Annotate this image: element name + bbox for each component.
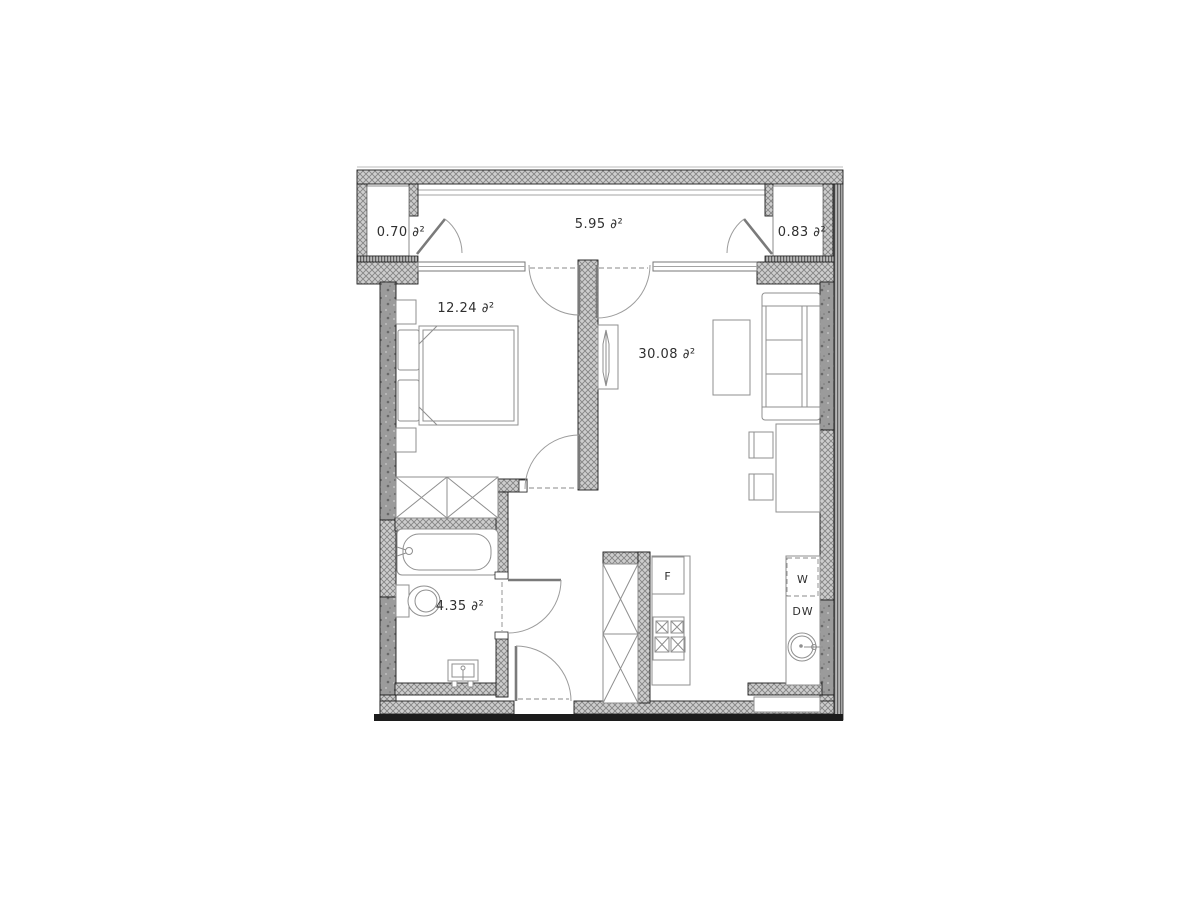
chair [749,432,773,458]
tv-unit [598,325,618,389]
right-wall [820,430,834,600]
right-closet-area-label: 0.83 ∂² [778,225,827,240]
right-closet-wall [823,184,833,264]
right-wall-concrete [820,282,834,430]
door-jamb [495,572,508,579]
left-closet-area-label: 0.70 ∂² [377,225,426,240]
bedroom-door [519,435,579,492]
bedroom-living-wall [578,260,598,490]
bedroom-balcony-door [529,265,579,315]
chair-seat [749,474,773,500]
floor-plan: 0.70 ∂² 5.95 ∂² 0.83 ∂² 12.24 ∂² 30.08 ∂… [0,0,1200,900]
washing-machine-label: W [797,573,809,586]
right-closet-door [727,219,772,254]
fridge-label: F [664,570,671,583]
dishwasher-label: DW [792,605,813,618]
bathroom-door [495,572,561,639]
right-wall-insulation-strip [834,184,843,720]
sofa [762,293,820,420]
top-wall-left-pier [357,262,418,284]
toilet [396,585,440,617]
bottom-wall-outer-line [374,714,843,721]
bedroom-wardrobe [396,477,498,518]
door-jamb [495,632,508,639]
nightstand [396,300,416,324]
hall-kitchen-wall [638,552,650,703]
top-wall-right-pier [757,262,834,284]
bottom-wall [380,701,514,714]
left-wall-concrete [380,282,396,520]
right-closet-wall-stub [765,184,773,216]
washbasin-leg [468,681,473,687]
bed-mattress [419,326,518,425]
chair [749,474,773,500]
left-closet-interior [367,186,409,256]
pillow [398,380,419,421]
bathroom-bottom-wall [395,683,507,695]
shaft-cabinet [603,564,638,703]
balcony-outer-wall [357,170,843,184]
kitchen-bottom-counter [754,697,820,712]
chair-seat [749,432,773,458]
living-room-area-label: 30.08 ∂² [638,347,695,362]
dining-table [776,424,820,512]
sink-drain [799,644,803,648]
right-closet-interior [773,186,823,256]
bathroom-east-wall [496,633,508,697]
bedroom-area-label: 12.24 ∂² [437,301,494,316]
living-balcony-door [597,265,650,318]
left-wall-concrete [380,597,396,695]
sofa-outline [762,293,820,420]
bathroom-area-label: 4.35 ∂² [436,599,485,614]
balcony-area-label: 5.95 ∂² [575,217,624,232]
left-wall [380,520,396,597]
coffee-table [713,320,750,395]
living-room-furniture [598,293,820,512]
nightstand [396,428,416,452]
tv-board [598,325,618,389]
bathtub [397,529,498,575]
washbasin-leg [452,681,457,687]
entry-door [516,646,571,701]
floor-plan-page: 0.70 ∂² 5.95 ∂² 0.83 ∂² 12.24 ∂² 30.08 ∂… [0,0,1200,900]
pillow [398,330,419,370]
left-closet-wall [357,184,367,264]
toilet-tank [396,585,409,617]
left-closet-wall-stub [409,184,418,216]
